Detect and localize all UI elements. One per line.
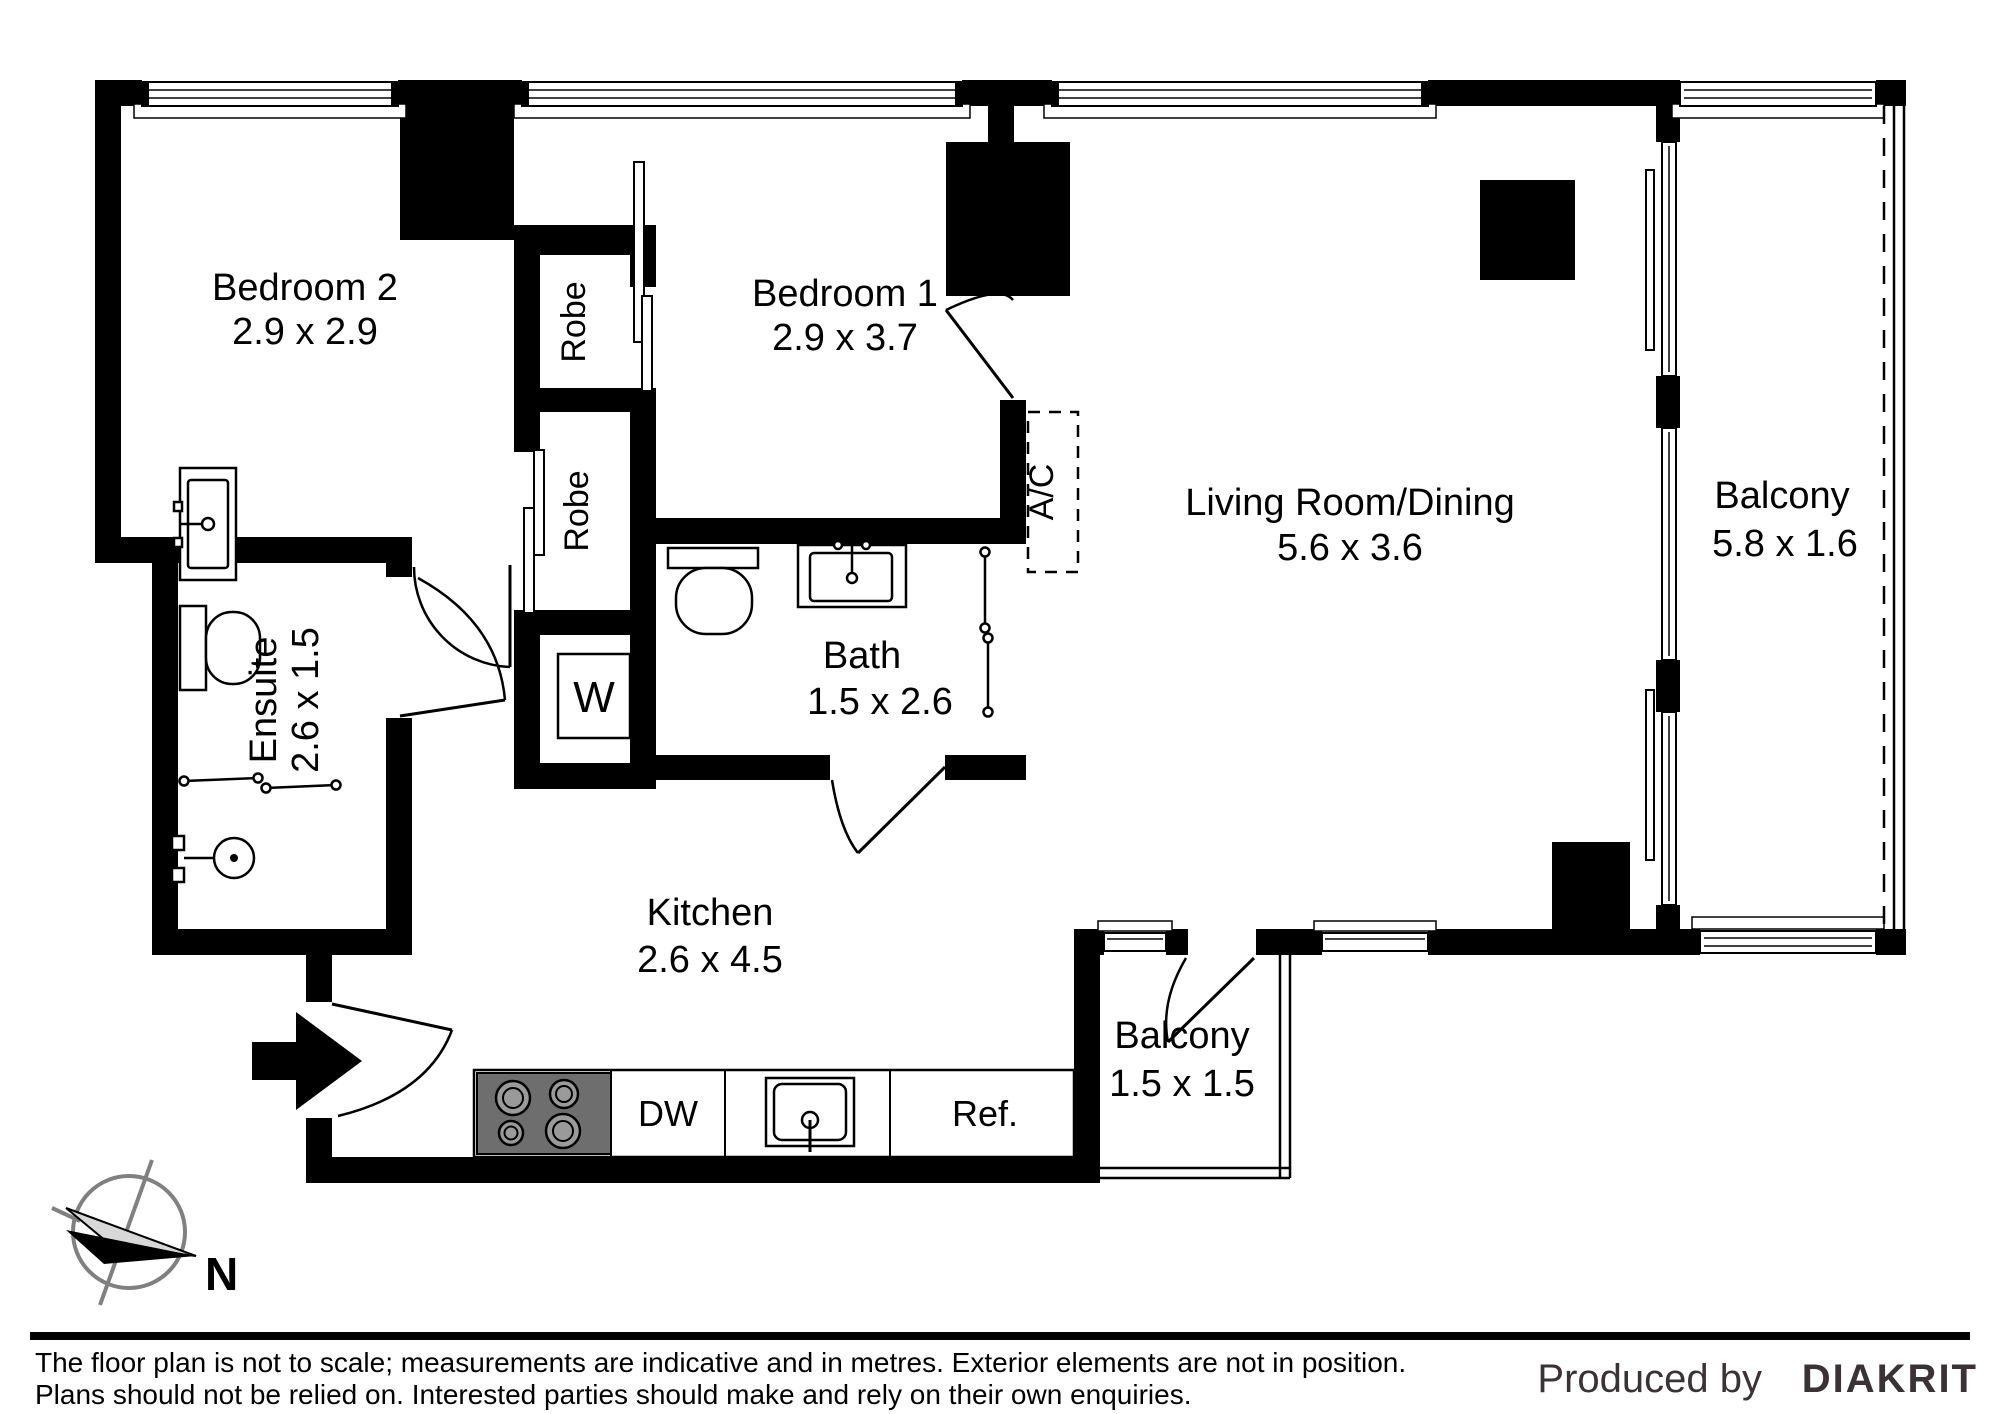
entry-arrow	[252, 1012, 362, 1110]
ensuite-toilet-tank	[180, 606, 206, 690]
floorplan-drawing: Bedroom 2 2.9 x 2.9 Bedroom 1 2.9 x 3.7 …	[0, 0, 2000, 1414]
door-bath-arc	[832, 780, 858, 853]
wall-bath-bottom-left	[656, 755, 830, 780]
window-bed2-cap-r	[391, 82, 398, 106]
bath-rail2-dot-a	[984, 634, 993, 643]
label-balcony-main-name: Balcony	[1714, 475, 1849, 517]
label-robe-upper: Robe	[555, 281, 593, 362]
column-bed2-robe	[400, 80, 514, 240]
window-living	[1052, 82, 1428, 106]
label-bath-dims: 1.5 x 2.6	[807, 681, 953, 723]
divider-stub-2	[1656, 376, 1680, 428]
wall-top-seg2	[962, 80, 1052, 106]
wall-balcony-bottom-corner-right	[1876, 929, 1906, 955]
bath-toilet-tank	[668, 548, 758, 568]
room-labels: Bedroom 2 2.9 x 2.9 Bedroom 1 2.9 x 3.7 …	[212, 267, 1858, 1134]
burner-4	[546, 1114, 580, 1148]
label-bedroom1-name: Bedroom 1	[752, 273, 938, 315]
footer-divider	[30, 1332, 1970, 1340]
ensuite-rail2-dot-b	[332, 781, 341, 790]
label-balcony-small-name: Balcony	[1114, 1015, 1249, 1057]
window-sb2	[1322, 933, 1428, 951]
label-dishwasher: DW	[638, 1093, 698, 1134]
door-bed1-arc	[946, 294, 1013, 310]
compass: N	[52, 1160, 238, 1305]
credit-brand: DIAKRIT	[1802, 1357, 1978, 1401]
label-robe-lower: Robe	[558, 470, 596, 551]
label-bedroom2-dims: 2.9 x 2.9	[232, 311, 378, 353]
ensuite-rail1-dot-b	[254, 774, 263, 783]
door-bed2-arc	[414, 567, 510, 667]
label-balcony-small-dims: 1.5 x 1.5	[1109, 1063, 1255, 1105]
disclaimer-line2: Plans should not be relied on. Intereste…	[35, 1379, 1191, 1410]
label-kitchen-name: Kitchen	[647, 892, 774, 934]
label-living-name: Living Room/Dining	[1185, 482, 1515, 524]
column-living-top	[1480, 180, 1575, 280]
window-balcony-bottom-sill	[1692, 917, 1884, 929]
bath-tap-handle-2	[862, 541, 870, 549]
ensuite-towel-rail-1	[184, 778, 258, 781]
label-fridge: Ref.	[952, 1093, 1018, 1134]
door-ensuite-leaf	[400, 700, 505, 716]
robe-lower-slider-2	[524, 508, 534, 613]
ensuite-tap-handle-1	[174, 502, 182, 511]
entry-arrow-head	[296, 1012, 362, 1110]
label-ensuite-name: Ensuite	[243, 637, 285, 764]
ensuite-towel-rail-2	[266, 785, 336, 788]
ensuite-rail2-dot-a	[262, 784, 271, 793]
wall-ensuite-right-top	[386, 563, 412, 577]
floorplan-page: Bedroom 2 2.9 x 2.9 Bedroom 1 2.9 x 3.7 …	[0, 0, 2000, 1414]
wall-living-bottom-4	[1428, 929, 1656, 955]
label-balcony-main-dims: 5.8 x 1.6	[1712, 523, 1858, 565]
window-sb1	[1104, 933, 1166, 951]
entry-arrow-stem	[252, 1042, 296, 1080]
ensuite-rail1-dot-a	[180, 777, 189, 786]
robe-upper-slider-2	[642, 296, 652, 391]
wall-bed2-right-upper	[514, 240, 540, 452]
divider-stub-3	[1656, 660, 1680, 712]
window-living-cap-l	[1052, 82, 1059, 106]
door-entry-arc	[338, 1030, 452, 1116]
window-living-cap-r	[1421, 82, 1428, 106]
wall-left	[95, 80, 121, 563]
wall-ensuite-right-bottom	[386, 718, 412, 929]
door-ensuite-arc	[418, 578, 505, 700]
bath-rail1-dot-a	[981, 548, 990, 557]
walls	[95, 80, 1906, 1183]
window-sb2-sill	[1314, 921, 1436, 931]
glass-panel-offset-1	[1646, 170, 1654, 350]
bath-toilet-bowl	[676, 568, 752, 634]
label-ensuite-dims: 2.6 x 1.5	[285, 627, 327, 773]
wall-top-seg3	[1428, 80, 1658, 106]
disclaimer-line1: The floor plan is not to scale; measurem…	[35, 1347, 1406, 1378]
window-bed2-cap-l	[142, 82, 149, 106]
wall-living-bottom-1	[1074, 929, 1104, 955]
label-bedroom1-dims: 2.9 x 3.7	[772, 317, 918, 359]
ensuite-shower-valve-2	[172, 868, 184, 882]
burner-2	[550, 1080, 578, 1108]
column-bed1	[946, 142, 1070, 296]
burner-1	[496, 1081, 530, 1115]
window-balcony-top	[1680, 82, 1876, 106]
wall-bath-bottom-right	[945, 755, 1026, 780]
bath-rail1-dot-b	[981, 624, 990, 633]
ensuite-shower-head-dot	[230, 854, 238, 862]
wall-living-bottom-2	[1166, 929, 1188, 955]
wall-kitchen-bottom	[306, 1157, 1100, 1183]
label-washer: W	[573, 673, 615, 722]
glass-panel-offset-2	[1646, 690, 1654, 860]
wall-ensuite-left	[152, 563, 178, 955]
footer: The floor plan is not to scale; measurem…	[30, 1332, 1978, 1410]
window-balcony-bottom	[1700, 931, 1876, 953]
compass-north-label: N	[205, 1248, 238, 1300]
column-bed1-neck	[988, 106, 1014, 146]
bath-tap	[847, 573, 857, 583]
wall-ensuite-bottom	[152, 929, 412, 955]
wall-kitchen-left-top	[306, 929, 332, 1002]
door-bed1-leaf	[946, 310, 1013, 398]
window-bed1	[522, 82, 962, 106]
wall-living-bottom-3	[1256, 929, 1322, 955]
wall-bath-top	[630, 518, 1026, 544]
ensuite-tap	[202, 518, 214, 530]
window-bed2	[142, 82, 398, 106]
window-bed1-cap-r	[955, 82, 962, 106]
bath-rail2-dot-b	[984, 708, 993, 717]
label-ac: A/C	[1023, 464, 1061, 521]
ensuite-tap-handle-2	[174, 538, 182, 547]
bath-tap-handle-1	[834, 541, 842, 549]
door-entry-leaf	[332, 1004, 452, 1030]
window-sb1-sill	[1098, 921, 1172, 931]
wall-top-right-corner	[1876, 80, 1906, 106]
wall-bed2-bottom	[95, 537, 412, 563]
credit-prefix: Produced by	[1537, 1357, 1762, 1401]
door-bath-leaf	[858, 767, 945, 853]
column-living-bottom	[1552, 842, 1630, 929]
label-kitchen-dims: 2.6 x 4.5	[637, 939, 783, 981]
robe-lower-slider-1	[534, 450, 544, 555]
divider-stub-4	[1656, 905, 1680, 955]
wall-bath-left	[630, 388, 656, 780]
doors	[332, 294, 1254, 1116]
wall-kitchen-right	[1074, 955, 1100, 1183]
window-bed1-cap-l	[522, 82, 529, 106]
stove-cooktop	[477, 1073, 611, 1154]
ensuite-shower-valve-1	[172, 836, 184, 850]
label-living-dims: 5.6 x 3.6	[1277, 527, 1423, 569]
label-bath-name: Bath	[823, 635, 901, 677]
label-bedroom2-name: Bedroom 2	[212, 267, 398, 309]
burner-3	[499, 1121, 523, 1145]
